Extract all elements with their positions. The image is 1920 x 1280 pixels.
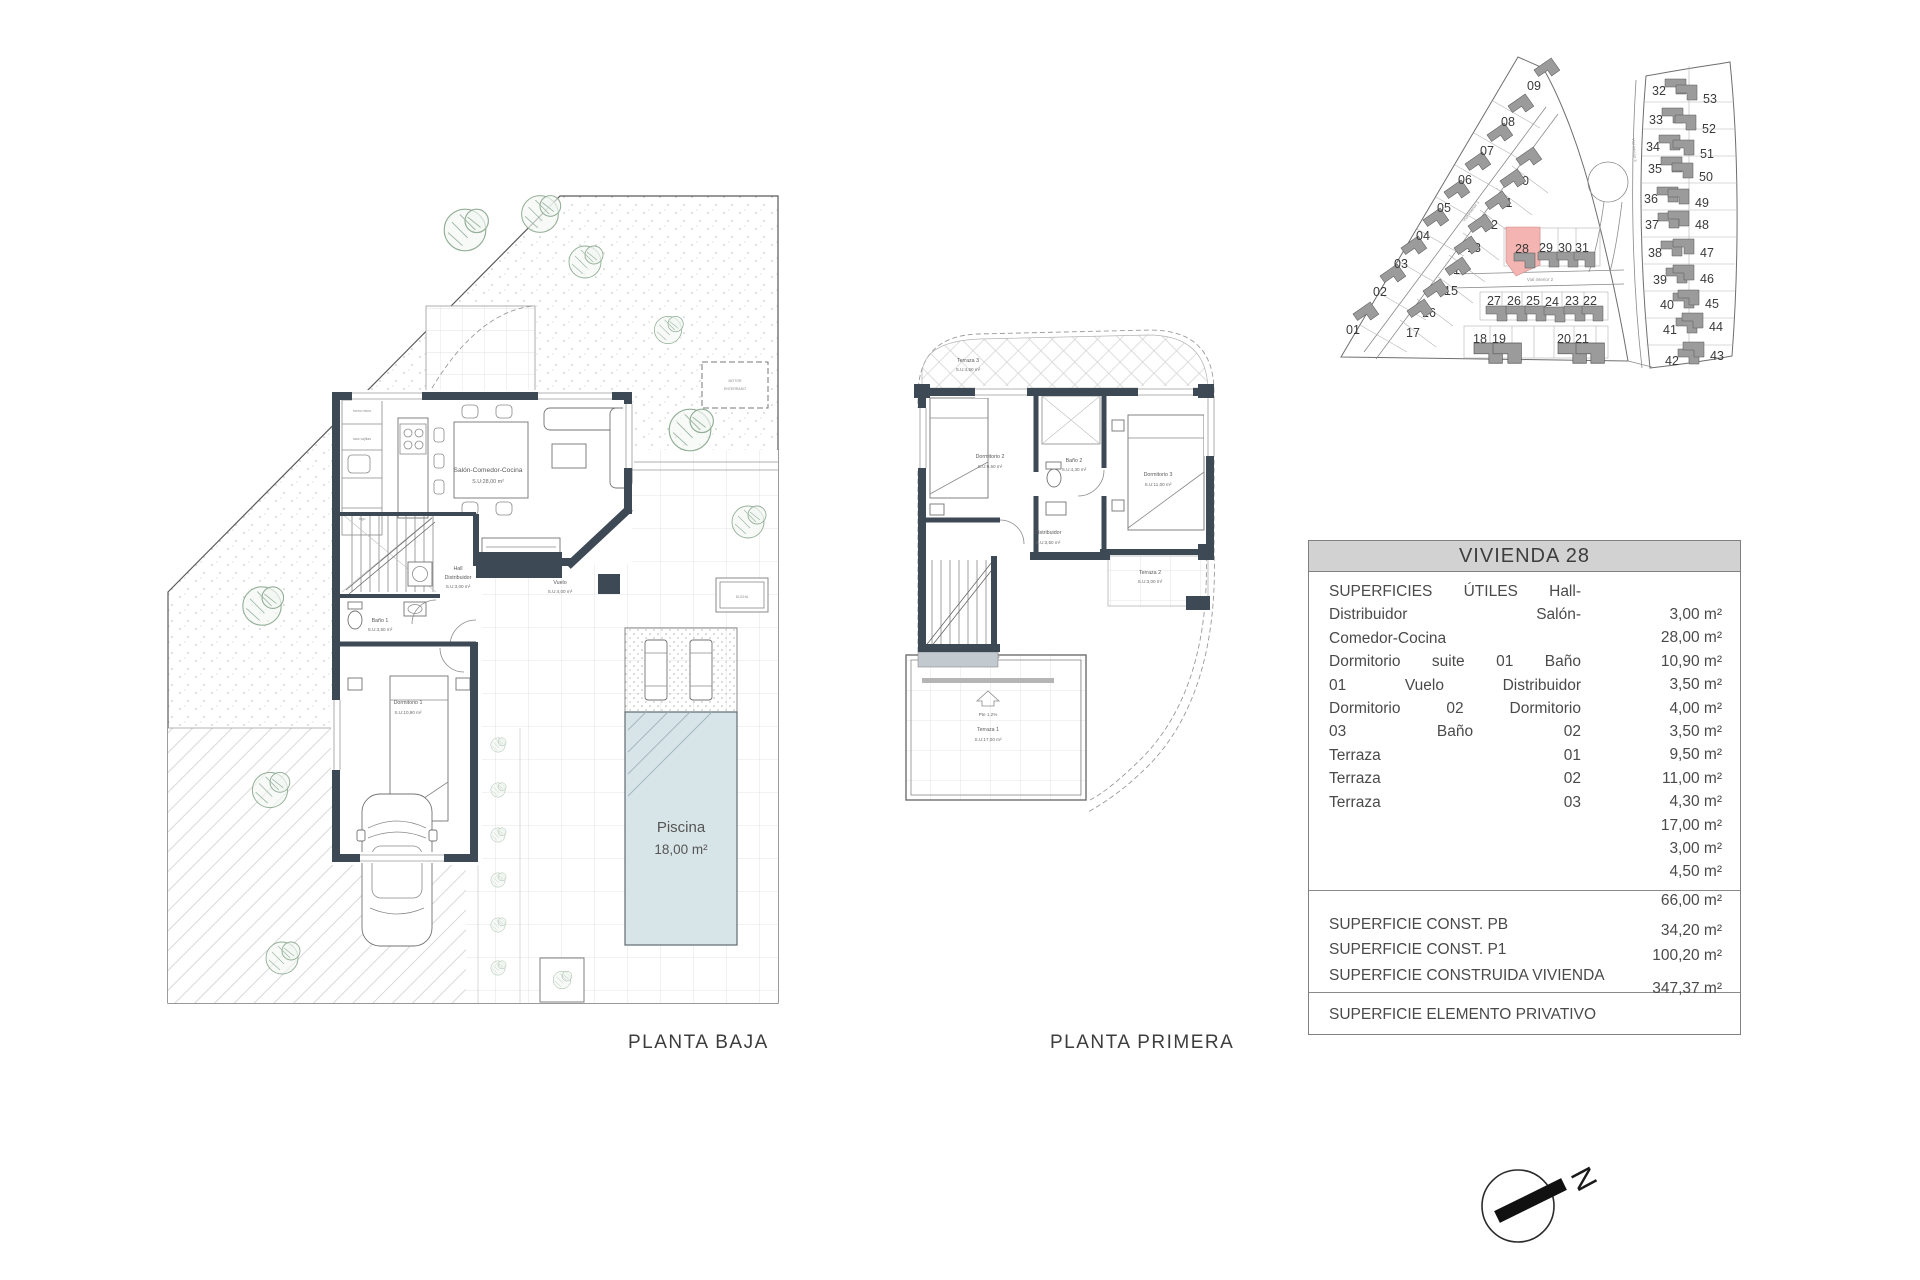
hall-label: Hall <box>453 566 462 572</box>
planta-baja-plan: Piscina 18,00 m² MOTOR ENTERRADO DUCHA h… <box>150 180 800 1020</box>
surface-label-line: Dormitorio suite 01 Baño <box>1329 650 1581 673</box>
surface-value: 3,50 m² <box>1661 673 1722 696</box>
svg-text:S.U:3,50 m²: S.U:3,50 m² <box>1036 540 1061 545</box>
salon-label: Salón-Comedor-Cocina <box>454 467 523 474</box>
svg-text:lava vajillas: lava vajillas <box>353 437 371 441</box>
svg-text:S.U:9,50 m²: S.U:9,50 m² <box>978 464 1003 469</box>
site-plot-number: 42 <box>1665 354 1679 368</box>
surface-label-line: 03 Baño 02 <box>1329 720 1581 743</box>
surface-value: 3,50 m² <box>1661 720 1722 743</box>
surface-value: 17,00 m² <box>1661 814 1722 837</box>
surface-value: 28,00 m² <box>1661 626 1722 649</box>
north-letter: N <box>1564 1162 1603 1197</box>
site-plot-number: 46 <box>1700 272 1714 286</box>
site-plot-number: 05 <box>1437 201 1451 215</box>
table-divider-1 <box>1309 890 1740 891</box>
site-plot-number: 23 <box>1565 294 1579 308</box>
pool-label: Piscina <box>657 819 706 836</box>
dormitorio3-label: Dormitorio 3 <box>1144 472 1173 478</box>
const-vivienda-label: SUPERFICIE CONSTRUIDA VIVIENDA <box>1329 963 1605 988</box>
site-plot-number-highlighted: 28 <box>1515 242 1529 256</box>
ducha-box: DUCHA <box>716 578 768 612</box>
total-value: 347,37 m² <box>1652 980 1722 998</box>
dormitorio1-label: Dormitorio 1 <box>394 700 423 706</box>
road-label-2: Vial interior 2 <box>1527 277 1554 282</box>
surface-value: 3,00 m² <box>1661 603 1722 626</box>
svg-text:S.U:3,00 m²: S.U:3,00 m² <box>1138 579 1163 584</box>
pool-area: Piscina 18,00 m² <box>625 628 737 945</box>
site-plan: Vial Interior 1 Vial interior 2 Vial Int… <box>1320 50 1760 380</box>
subtotal-value: 66,00 m² <box>1661 892 1722 910</box>
pool-area-label: 18,00 m² <box>654 842 708 857</box>
svg-text:ENTERRADO: ENTERRADO <box>724 387 746 391</box>
site-plot-number: 22 <box>1583 294 1597 308</box>
surface-value: 4,50 m² <box>1661 860 1722 883</box>
site-plot-number: 50 <box>1699 170 1713 184</box>
const-pb-label: SUPERFICIE CONST. PB <box>1329 912 1605 937</box>
surface-value: 4,00 m² <box>1661 697 1722 720</box>
site-plot-number: 29 <box>1539 241 1553 255</box>
terraza2: Terraza 2 S.U:3,00 m² <box>1108 556 1210 610</box>
site-plot-number: 35 <box>1648 162 1662 176</box>
bano2-label: Baño 2 <box>1066 458 1083 464</box>
site-plot-number: 06 <box>1458 173 1472 187</box>
motor-enterrado-box: MOTOR ENTERRADO <box>702 362 768 408</box>
surface-value: 4,30 m² <box>1661 790 1722 813</box>
site-plot-number: 07 <box>1480 144 1494 158</box>
const-p1-value: 100,20 m² <box>1652 943 1722 968</box>
site-plot-number: 49 <box>1695 196 1709 210</box>
car <box>357 794 437 946</box>
site-plot-number: 37 <box>1645 218 1659 232</box>
site-plot-number: 04 <box>1416 229 1430 243</box>
surface-label-line: Terraza 01 <box>1329 744 1581 767</box>
site-plot-number: 44 <box>1709 320 1723 334</box>
site-plot-number: 30 <box>1558 241 1572 255</box>
svg-text:S.U:10,90 m²: S.U:10,90 m² <box>394 710 422 715</box>
svg-text:S.U:4,30 m²: S.U:4,30 m² <box>1062 467 1087 472</box>
bano1-label: Baño 1 <box>372 618 389 624</box>
site-plot-number: 25 <box>1526 294 1540 308</box>
site-plot-number: 02 <box>1373 285 1387 299</box>
north-compass: N <box>1460 1140 1680 1270</box>
svg-text:S.U:4,00 m²: S.U:4,00 m² <box>548 589 573 594</box>
site-plot-number: 01 <box>1346 323 1360 337</box>
site-plot-number: 08 <box>1501 115 1515 129</box>
superficies-utiles-values: 3,00 m²28,00 m²10,90 m²3,50 m²4,00 m²3,5… <box>1661 603 1722 884</box>
svg-text:S.U:28,00 m²: S.U:28,00 m² <box>472 479 504 485</box>
const-pb-value: 34,20 m² <box>1652 918 1722 943</box>
const-p1-label: SUPERFICIE CONST. P1 <box>1329 937 1605 962</box>
privative-label: SUPERFICIE ELEMENTO PRIVATIVO <box>1329 1006 1596 1024</box>
planta-primera-plan: Terraza 3 S.U:4,50 m² Terraza 2 S.U:3,00… <box>880 315 1230 835</box>
site-plot-number: 52 <box>1702 122 1716 136</box>
vivienda-table-body: SUPERFICIES ÚTILES Hall-Distribuidor Sal… <box>1309 572 1740 1034</box>
terraza3: Terraza 3 S.U:4,50 m² <box>922 335 1208 388</box>
planta-primera-caption: PLANTA PRIMERA <box>1050 1032 1234 1054</box>
svg-text:S.U:17,00 m²: S.U:17,00 m² <box>974 737 1002 742</box>
surface-label-line: Distribuidor Salón- <box>1329 603 1581 626</box>
const-labels: SUPERFICIE CONST. PB SUPERFICIE CONST. P… <box>1329 912 1605 988</box>
site-plot-number: 32 <box>1652 84 1666 98</box>
site-plot-number: 17 <box>1406 326 1420 340</box>
const-values: 34,20 m² 100,20 m² <box>1652 918 1722 969</box>
site-plot-number: 31 <box>1575 241 1589 255</box>
site-plot-number: 19 <box>1492 332 1506 346</box>
site-plot-number: 41 <box>1663 323 1677 337</box>
surface-value: 10,90 m² <box>1661 650 1722 673</box>
svg-text:DUCHA: DUCHA <box>736 595 749 599</box>
surface-value: 9,50 m² <box>1661 743 1722 766</box>
terraza1: Pte 1.2% Pte 1.2% Terraza 1 S.U:17,00 m² <box>906 644 1086 800</box>
site-plot-number: 27 <box>1487 294 1501 308</box>
site-plot-number: 36 <box>1644 192 1658 206</box>
surface-label-line: Dormitorio 02 Dormitorio <box>1329 697 1581 720</box>
site-plot-number: 43 <box>1710 349 1724 363</box>
dormitorio2-label: Dormitorio 2 <box>976 454 1005 460</box>
surface-value: 3,00 m² <box>1661 837 1722 860</box>
site-plot-number: 24 <box>1545 295 1559 309</box>
site-plot-number: 53 <box>1703 92 1717 106</box>
site-plot-number: 40 <box>1660 298 1674 312</box>
site-plot-number: 45 <box>1705 297 1719 311</box>
site-plot-number: 26 <box>1507 294 1521 308</box>
site-plot-number: 39 <box>1653 273 1667 287</box>
slope-label-2: Pte 1.2% <box>979 712 998 717</box>
svg-text:S.U:3,50 m²: S.U:3,50 m² <box>368 627 393 632</box>
svg-text:S.U:4,50 m²: S.U:4,50 m² <box>956 367 981 372</box>
superficies-utiles-labels: SUPERFICIES ÚTILES Hall-Distribuidor Sal… <box>1329 580 1581 814</box>
svg-text:horno micro: horno micro <box>353 409 372 413</box>
svg-text:S.U:3,00 m²: S.U:3,00 m² <box>446 584 471 589</box>
planta-baja-caption: PLANTA BAJA <box>628 1032 769 1054</box>
site-plot-number: 38 <box>1648 246 1662 260</box>
road-label-3: Vial Interior 3 <box>1631 138 1638 163</box>
site-plot-number: 33 <box>1649 113 1663 127</box>
site-plot-number: 03 <box>1394 257 1408 271</box>
surface-value: 11,00 m² <box>1661 767 1722 790</box>
site-plot-number: 18 <box>1473 332 1487 346</box>
site-plot-number: 21 <box>1575 332 1589 346</box>
svg-text:Terraza 2: Terraza 2 <box>1139 570 1161 576</box>
svg-text:MOTOR: MOTOR <box>729 379 742 383</box>
surface-label-line: Comedor-Cocina <box>1329 627 1581 650</box>
site-plot-number: 48 <box>1695 218 1709 232</box>
svg-text:frigo: frigo <box>359 517 366 521</box>
svg-text:Terraza 1: Terraza 1 <box>977 727 999 733</box>
surface-label-line: 01 Vuelo Distribuidor <box>1329 674 1581 697</box>
surface-label-line: SUPERFICIES ÚTILES Hall- <box>1329 580 1581 603</box>
vivienda-table: VIVIENDA 28 SUPERFICIES ÚTILES Hall-Dist… <box>1308 540 1741 1035</box>
site-plot-number: 20 <box>1557 332 1571 346</box>
site-plot-number: 51 <box>1700 147 1714 161</box>
distribuidor-label: Distribuidor <box>1035 530 1062 536</box>
vuelo-label: Vuelo <box>553 580 566 586</box>
svg-text:Terraza 3: Terraza 3 <box>957 358 979 364</box>
surface-label-line: Terraza 03 <box>1329 791 1581 814</box>
site-plot-number: 09 <box>1527 79 1541 93</box>
site-plot-number: 34 <box>1646 140 1660 154</box>
vivienda-table-title: VIVIENDA 28 <box>1309 541 1740 572</box>
svg-text:S.U:11,00 m²: S.U:11,00 m² <box>1145 482 1172 487</box>
svg-text:Distribuidor: Distribuidor <box>445 575 472 581</box>
site-plot-number: 47 <box>1700 246 1714 260</box>
surface-label-line: Terraza 02 <box>1329 767 1581 790</box>
